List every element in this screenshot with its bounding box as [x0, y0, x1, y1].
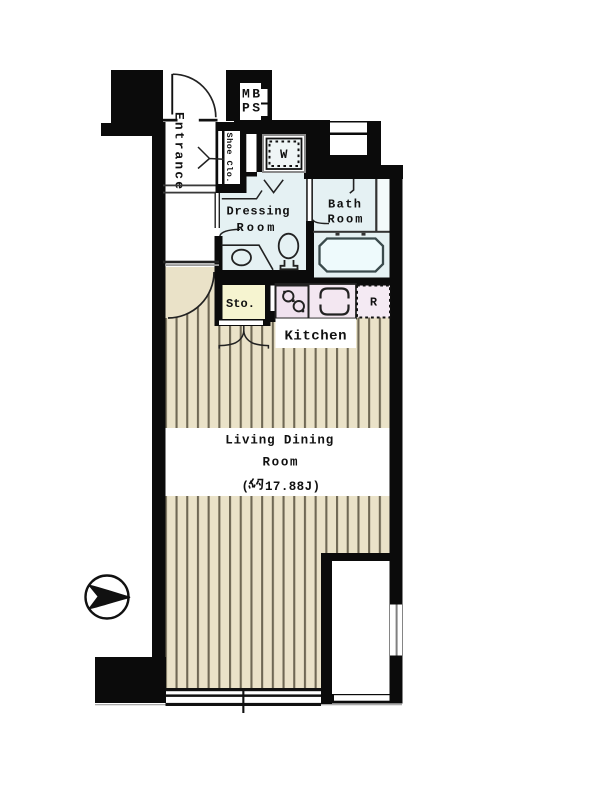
svg-text:Room: Room	[263, 456, 298, 470]
svg-text:Shoe Clo.: Shoe Clo.	[224, 133, 234, 183]
svg-text:17.88J): 17.88J)	[265, 480, 320, 494]
svg-text:W: W	[280, 148, 288, 162]
svg-text:Entrance: Entrance	[172, 112, 187, 189]
svg-text:R: R	[370, 296, 378, 310]
svg-text:Kitchen: Kitchen	[285, 329, 347, 345]
svg-text:Dressing: Dressing	[227, 205, 290, 219]
svg-text:Living Dining: Living Dining	[225, 434, 333, 448]
svg-text:(: (	[242, 480, 250, 494]
svg-text:Sto.: Sto.	[226, 297, 255, 311]
svg-text:Bath: Bath	[328, 198, 361, 212]
